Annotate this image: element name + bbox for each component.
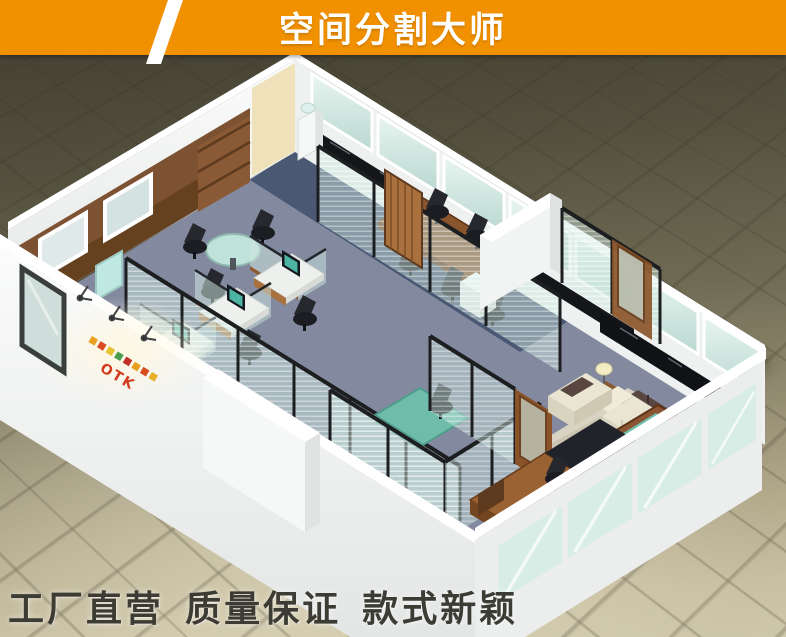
promo-image: OTK 空间分割大师 xyxy=(0,0,786,637)
slogan: 工厂直营 质量保证 款式新颖 xyxy=(8,580,534,632)
slogan-item-style: 款式新颖 xyxy=(362,589,518,630)
diagonal-slash-icon xyxy=(146,0,185,64)
banner-title: 空间分割大师 xyxy=(279,2,507,53)
office-3d-render: OTK xyxy=(0,0,786,637)
banner: 空间分割大师 xyxy=(0,0,786,55)
slogan-item-quality: 质量保证 xyxy=(185,589,341,630)
slogan-item-factory: 工厂直营 xyxy=(8,589,164,630)
